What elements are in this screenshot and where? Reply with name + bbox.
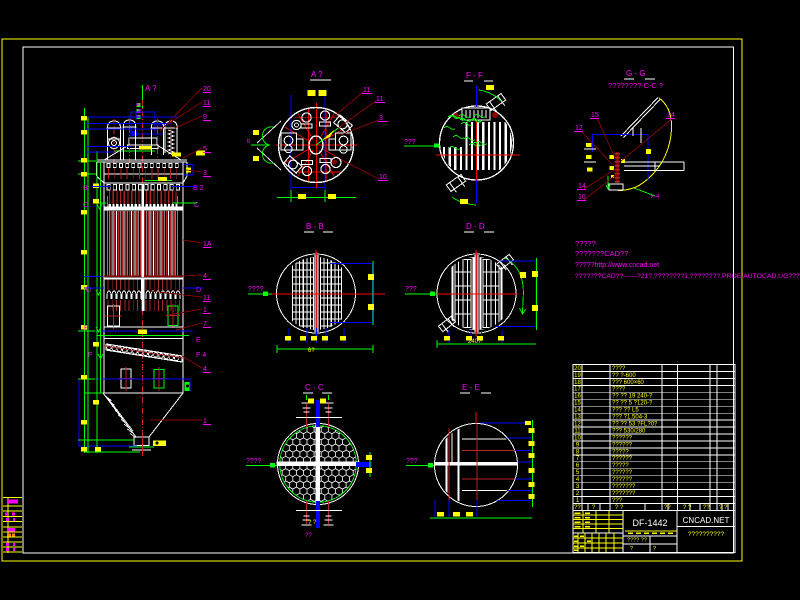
svg-text:19: 19 [574, 373, 581, 379]
svg-text:???: ??? [405, 286, 417, 293]
svg-text:k-4: k-4 [651, 194, 660, 200]
svg-text:6?: 6? [308, 348, 315, 354]
svg-text:???: ??? [406, 458, 418, 465]
svg-text:??? 600×60: ??? 600×60 [612, 380, 645, 386]
svg-text:CNCAD.NET: CNCAD.NET [683, 516, 730, 525]
svg-text:?????http://www.cncad.net: ?????http://www.cncad.net [575, 262, 659, 269]
svg-text:??: ?? [305, 533, 312, 539]
svg-text:?????: ????? [612, 449, 629, 455]
svg-text:11: 11 [376, 96, 383, 103]
svg-text:7: 7 [203, 321, 207, 328]
svg-text:E - E: E - E [462, 383, 480, 392]
svg-text:??????????: ?????????? [688, 531, 725, 538]
svg-text:18: 18 [574, 380, 581, 386]
svg-text:??? ?1.504-3: ??? ?1.504-3 [612, 415, 648, 421]
svg-text:??????: ?????? [612, 477, 633, 483]
svg-text:????: ???? [248, 286, 264, 293]
svg-text:????: ???? [246, 458, 262, 465]
svg-text:????: ???? [612, 366, 626, 372]
svg-text:10: 10 [574, 435, 581, 441]
svg-text:C - C: C - C [305, 383, 324, 392]
svg-text:E: E [84, 325, 89, 332]
svg-text:??????: ?????? [612, 470, 633, 476]
svg-text:C: C [83, 202, 88, 209]
svg-text:4: 4 [203, 273, 207, 280]
svg-text:F: F [88, 352, 92, 359]
svg-text:1: 1 [203, 418, 207, 425]
svg-text:?? ?? 53 ?FL?0?: ?? ?? 53 ?FL?0? [612, 421, 658, 427]
svg-text:? ?: ? ? [308, 520, 317, 526]
svg-text:A ?: A ? [311, 70, 323, 79]
svg-text:20: 20 [203, 86, 211, 93]
svg-text:F - F: F - F [466, 71, 483, 80]
svg-text:??????: ?????? [612, 435, 633, 441]
svg-text:?????: ????? [575, 239, 596, 248]
svg-text:3: 3 [379, 115, 383, 122]
svg-text:3: 3 [203, 170, 207, 177]
svg-text:14: 14 [574, 408, 581, 414]
svg-text:A ?: A ? [145, 84, 157, 93]
svg-text:?????: ????? [612, 463, 629, 469]
svg-text:D - D: D - D [466, 222, 485, 231]
svg-text:11: 11 [363, 87, 370, 94]
svg-text:???????: ??????? [612, 484, 636, 490]
svg-text:4: 4 [203, 366, 207, 373]
svg-text:13: 13 [574, 415, 581, 421]
svg-text:11: 11 [574, 428, 581, 434]
svg-text:???????CAD??——?21?,????????1,?: ???????CAD??——?21?,????????1,????????,PR… [575, 273, 800, 280]
svg-text:?? ?? 19 240-?: ?? ?? 19 240-? [612, 394, 653, 400]
svg-text:B - B: B - B [306, 222, 324, 231]
svg-text:?? ?-600: ?? ?-600 [612, 373, 636, 379]
svg-text:17: 17 [574, 387, 581, 393]
svg-text:G - G: G - G [626, 69, 646, 78]
svg-text:11: 11 [203, 295, 210, 302]
svg-text:B: B [83, 185, 88, 192]
svg-text:????: ???? [612, 387, 626, 393]
svg-text:E: E [196, 337, 201, 344]
svg-text:10: 10 [379, 174, 387, 181]
svg-text:?? ?? 5 ?120-?: ?? ?? 5 ?120-? [612, 401, 653, 407]
svg-text:9: 9 [203, 114, 207, 121]
svg-text:240?: 240? [468, 339, 482, 345]
svg-text:15: 15 [574, 401, 581, 407]
svg-text:5: 5 [203, 146, 207, 153]
svg-text:1A: 1A [203, 241, 212, 248]
svg-text:??? ?? L5: ??? ?? L5 [612, 408, 639, 414]
svg-text:?: ? [630, 546, 633, 552]
svg-text:16: 16 [574, 394, 581, 400]
svg-text:10: 10 [578, 194, 586, 201]
svg-text:??????: ?????? [612, 442, 633, 448]
svg-text:11: 11 [203, 100, 210, 107]
svg-text:?: ? [653, 546, 656, 552]
svg-text:???????: ??????? [612, 491, 636, 497]
svg-text:14: 14 [667, 112, 675, 119]
svg-text:???????? C-C ?: ???????? C-C ? [608, 81, 663, 90]
svg-text:F 4: F 4 [196, 352, 206, 359]
svg-text:???????CAD??: ???????CAD?? [575, 249, 628, 258]
svg-text:???: ??? [612, 498, 623, 504]
svg-text:???: ??? [404, 139, 416, 146]
svg-text:12: 12 [575, 125, 583, 132]
svg-text:???? ??: ???? ?? [627, 538, 647, 544]
svg-text:??? 530/280: ??? 530/280 [612, 428, 646, 434]
svg-text:20: 20 [574, 366, 581, 372]
svg-text:14: 14 [578, 183, 586, 190]
svg-text:1: 1 [203, 307, 207, 314]
svg-text:12: 12 [574, 421, 581, 427]
svg-text:DF-1442: DF-1442 [632, 518, 667, 528]
svg-text:15: 15 [591, 112, 599, 119]
svg-text:??????: ?????? [612, 456, 633, 462]
